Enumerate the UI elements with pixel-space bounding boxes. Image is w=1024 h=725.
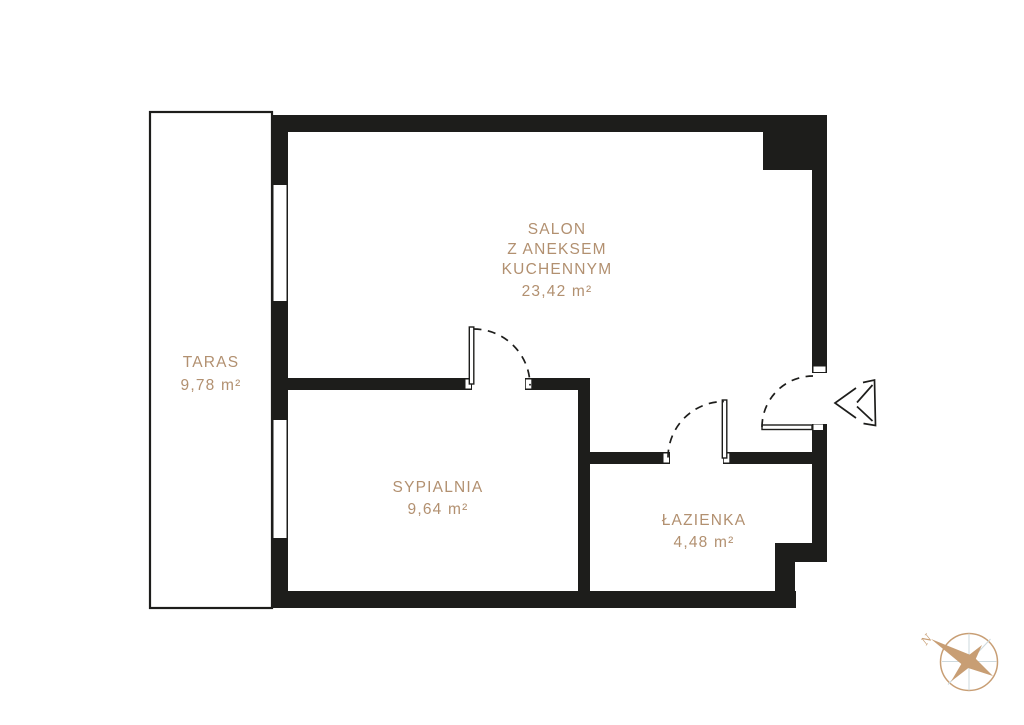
jamb-entrance-top: [814, 367, 826, 373]
wall-bedroom-bathroom: [578, 378, 590, 592]
walls: [272, 115, 827, 608]
compass-north-label: N: [918, 632, 935, 649]
wall-bottom: [272, 591, 796, 608]
wall-step-vertical: [775, 543, 795, 608]
wall-bathroom-right-segment: [723, 452, 812, 464]
wall-pillar-top-right: [763, 115, 827, 170]
floor-plan-canvas: TARAS 9,78 m² SALON Z ANEKSEM KUCHENNYM …: [0, 0, 1024, 725]
window-salon: [274, 185, 287, 301]
entrance-arrow-icon: [835, 380, 876, 426]
salon-name-line3: KUCHENNYM: [502, 261, 613, 278]
room-label-salon: SALON Z ANEKSEM KUCHENNYM 23,42 m²: [502, 221, 613, 300]
entrance-door-leaf: [762, 425, 812, 430]
taras-name: TARAS: [183, 354, 240, 371]
door-jambs: [466, 367, 826, 463]
lazienka-name: ŁAZIENKA: [662, 512, 747, 529]
room-label-lazienka: ŁAZIENKA 4,48 m²: [662, 512, 747, 551]
jamb-entrance-bottom: [814, 425, 824, 431]
room-label-sypialnia: SYPIALNIA 9,64 m²: [393, 479, 484, 518]
salon-area: 23,42 m²: [522, 283, 593, 300]
bathroom-door-arc: [668, 402, 724, 458]
wall-right-lower: [812, 424, 827, 562]
entrance-door-arc: [762, 376, 813, 427]
wall-bathroom-left-segment: [590, 452, 670, 464]
doors: [469, 327, 813, 458]
room-label-taras: TARAS 9,78 m²: [181, 354, 242, 394]
taras-area: 9,78 m²: [181, 377, 242, 394]
wall-right-upper: [812, 170, 827, 373]
bedroom-door-arc: [474, 329, 531, 386]
bathroom-door-leaf: [722, 400, 727, 458]
compass-rose-icon: N: [918, 632, 998, 691]
salon-name-line1: SALON: [528, 221, 587, 238]
sypialnia-name: SYPIALNIA: [393, 479, 484, 496]
salon-name-line2: Z ANEKSEM: [507, 241, 607, 258]
wall-bedroom-left-segment: [287, 378, 472, 390]
floor-plan-page: TARAS 9,78 m² SALON Z ANEKSEM KUCHENNYM …: [0, 0, 1024, 725]
wall-top: [272, 115, 827, 132]
lazienka-area: 4,48 m²: [674, 534, 735, 551]
sypialnia-area: 9,64 m²: [408, 501, 469, 518]
window-bedroom: [274, 420, 287, 538]
bedroom-door-leaf: [469, 327, 474, 384]
